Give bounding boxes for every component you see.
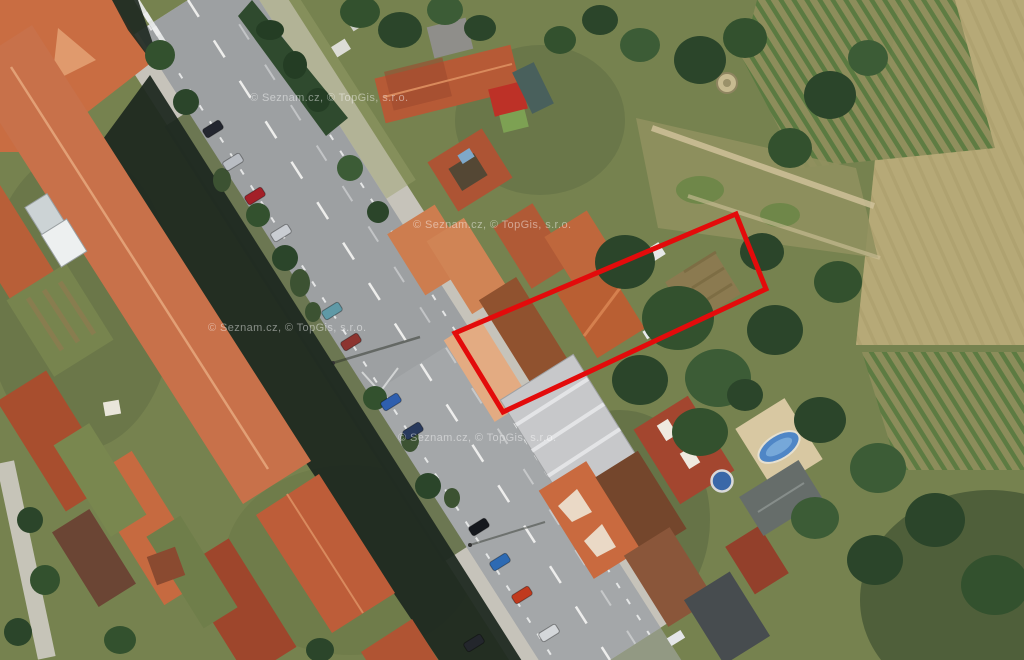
- tree: [727, 379, 763, 411]
- tree: [544, 26, 576, 54]
- tree: [723, 18, 767, 58]
- bush: [290, 269, 310, 297]
- bush: [213, 168, 231, 192]
- tree: [378, 12, 422, 48]
- tree: [4, 618, 32, 646]
- attribution-text: © Seznam.cz, © TopGis, s.r.o.: [250, 92, 408, 104]
- tree: [848, 40, 888, 76]
- tree: [814, 261, 862, 303]
- tree: [246, 203, 270, 227]
- tree: [582, 5, 618, 35]
- tree: [337, 155, 363, 181]
- tree: [620, 28, 660, 62]
- tree: [272, 245, 298, 271]
- small-structure: [103, 400, 121, 417]
- tree: [30, 565, 60, 595]
- tree: [804, 71, 856, 119]
- garden-circle-center: [723, 79, 731, 87]
- bush: [305, 302, 321, 322]
- tree: [17, 507, 43, 533]
- tree: [791, 497, 839, 539]
- round-pool: [712, 471, 733, 492]
- tree: [464, 15, 496, 41]
- hedge-bush: [256, 20, 284, 40]
- tree: [672, 408, 728, 456]
- tree: [768, 128, 812, 168]
- tree: [850, 443, 906, 493]
- tree: [905, 493, 965, 547]
- tree: [612, 355, 668, 405]
- garden-patch: [760, 203, 800, 227]
- utility-pole: [468, 543, 472, 547]
- tree: [145, 40, 175, 70]
- tree: [367, 201, 389, 223]
- tree: [847, 535, 903, 585]
- aerial-imagery[interactable]: © Seznam.cz, © TopGis, s.r.o. © Seznam.c…: [0, 0, 1024, 660]
- hedge-bush: [283, 51, 307, 79]
- tree: [747, 305, 803, 355]
- tree: [794, 397, 846, 443]
- attribution-text: © Seznam.cz, © TopGis, s.r.o.: [398, 432, 556, 444]
- attribution-text: © Seznam.cz, © TopGis, s.r.o.: [208, 322, 366, 334]
- tree: [674, 36, 726, 84]
- attribution-text: © Seznam.cz, © TopGis, s.r.o.: [413, 219, 571, 231]
- bush: [444, 488, 460, 508]
- tree: [173, 89, 199, 115]
- map-canvas[interactable]: © Seznam.cz, © TopGis, s.r.o. © Seznam.c…: [0, 0, 1024, 660]
- tree: [415, 473, 441, 499]
- tree: [104, 626, 136, 654]
